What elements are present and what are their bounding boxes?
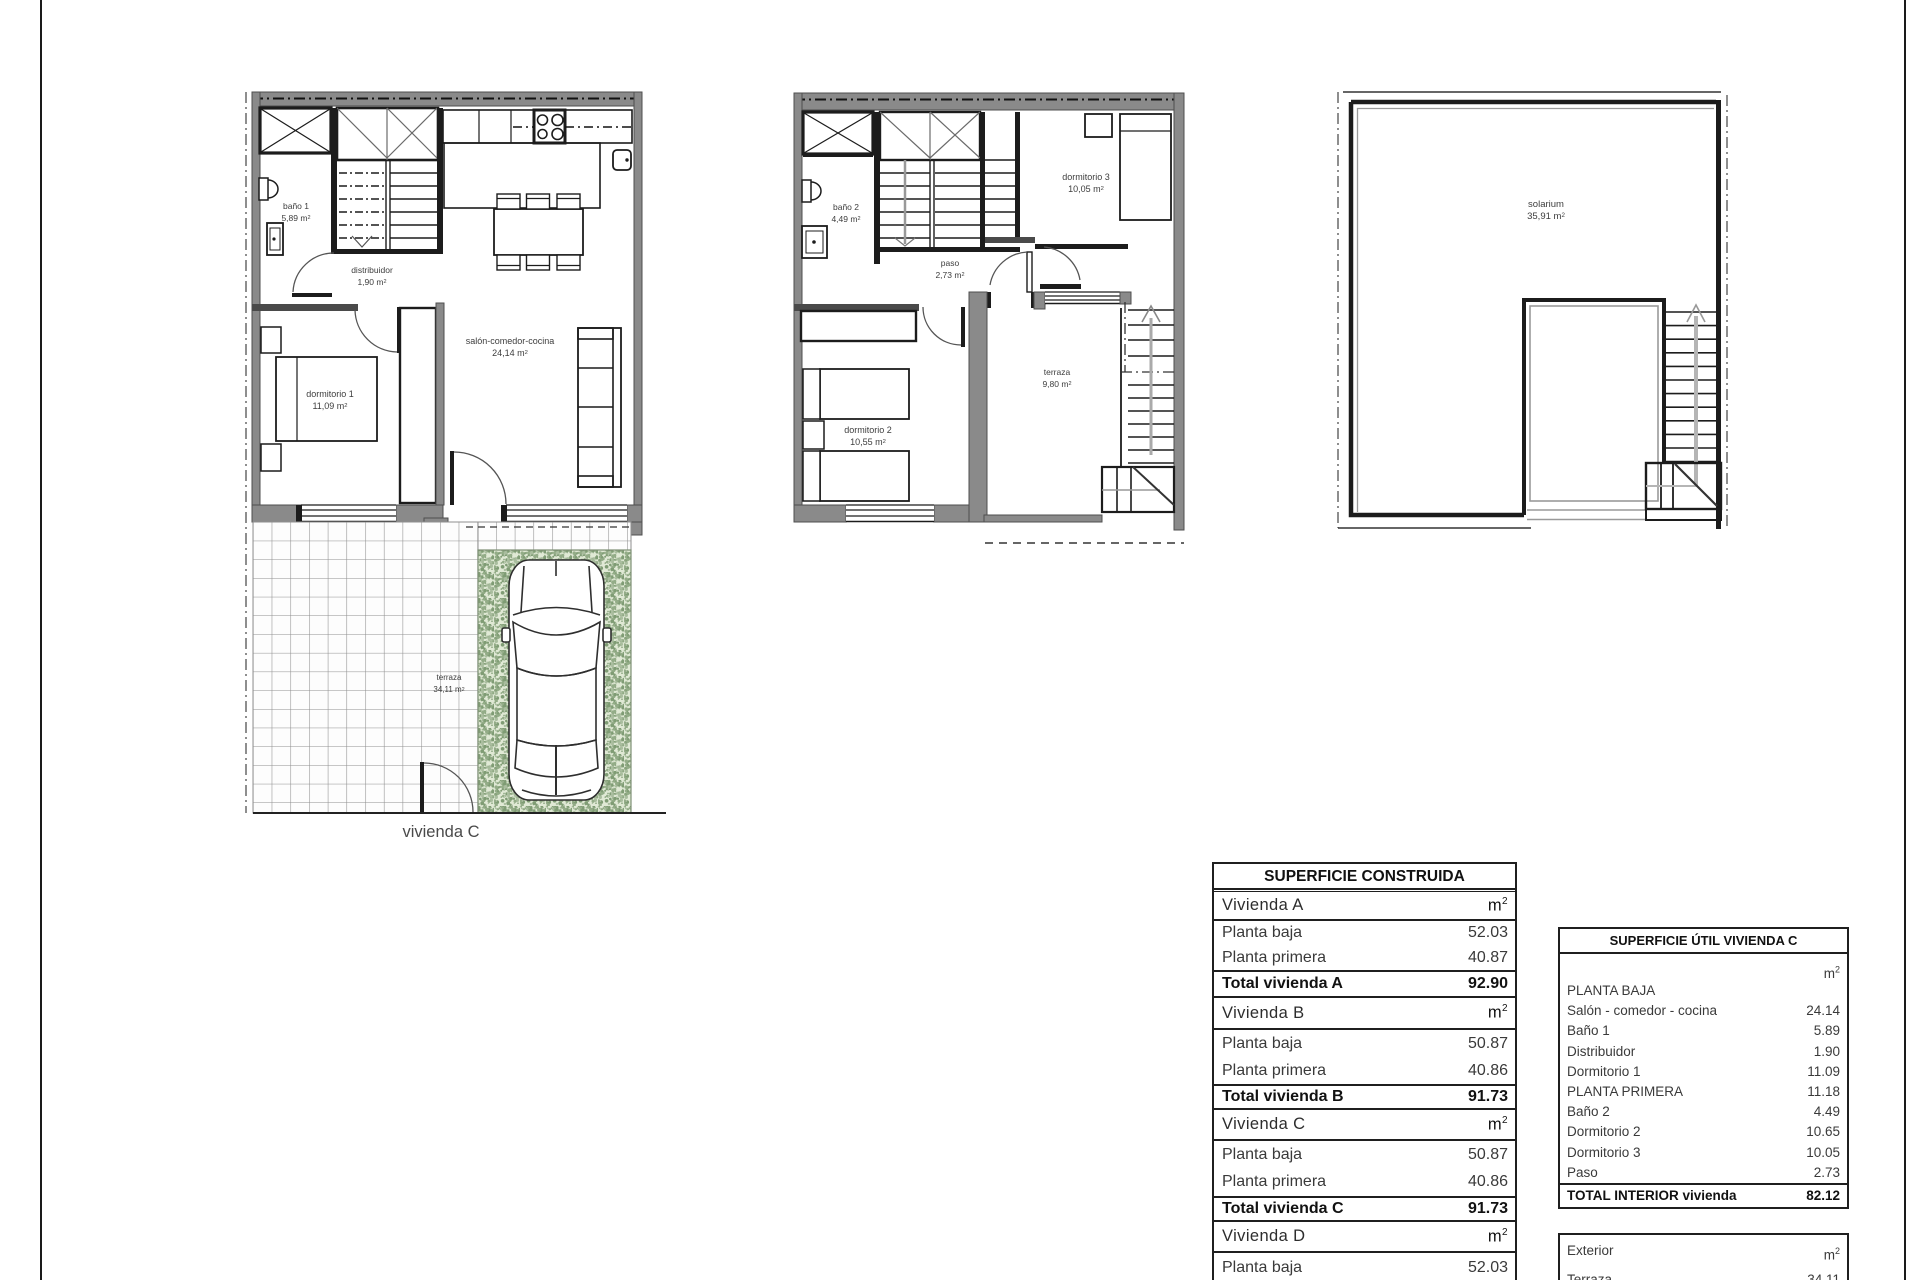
svg-text:1,90 m2: 1,90 m2 bbox=[357, 277, 386, 287]
svg-text:terraza: terraza bbox=[437, 673, 462, 682]
svg-text:9,80 m2: 9,80 m2 bbox=[1042, 379, 1071, 389]
svg-text:terraza: terraza bbox=[1044, 367, 1071, 377]
svg-text:salón-comedor-cocina: salón-comedor-cocina bbox=[466, 336, 555, 346]
svg-text:2,73 m2: 2,73 m2 bbox=[935, 270, 964, 280]
svg-text:dormitorio 1: dormitorio 1 bbox=[306, 389, 354, 399]
svg-text:35,91 m2: 35,91 m2 bbox=[1527, 211, 1565, 222]
svg-text:paso: paso bbox=[941, 258, 960, 268]
svg-text:10,55 m2: 10,55 m2 bbox=[850, 437, 886, 447]
svg-text:baño 1: baño 1 bbox=[283, 201, 309, 211]
svg-text:4,49 m2: 4,49 m2 bbox=[831, 214, 860, 224]
svg-text:dormitorio 3: dormitorio 3 bbox=[1062, 172, 1110, 182]
svg-text:baño 2: baño 2 bbox=[833, 202, 859, 212]
svg-text:34,11 m2: 34,11 m2 bbox=[433, 685, 464, 694]
svg-text:11,09 m2: 11,09 m2 bbox=[312, 401, 347, 411]
svg-text:dormitorio 2: dormitorio 2 bbox=[844, 425, 892, 435]
svg-text:solarium: solarium bbox=[1528, 199, 1564, 210]
svg-text:distribuidor: distribuidor bbox=[351, 265, 393, 275]
svg-text:10,05 m2: 10,05 m2 bbox=[1068, 184, 1104, 194]
svg-text:5,89 m2: 5,89 m2 bbox=[281, 213, 310, 223]
svg-text:24,14 m2: 24,14 m2 bbox=[492, 348, 528, 358]
svg-text:vivienda C: vivienda C bbox=[402, 823, 479, 841]
